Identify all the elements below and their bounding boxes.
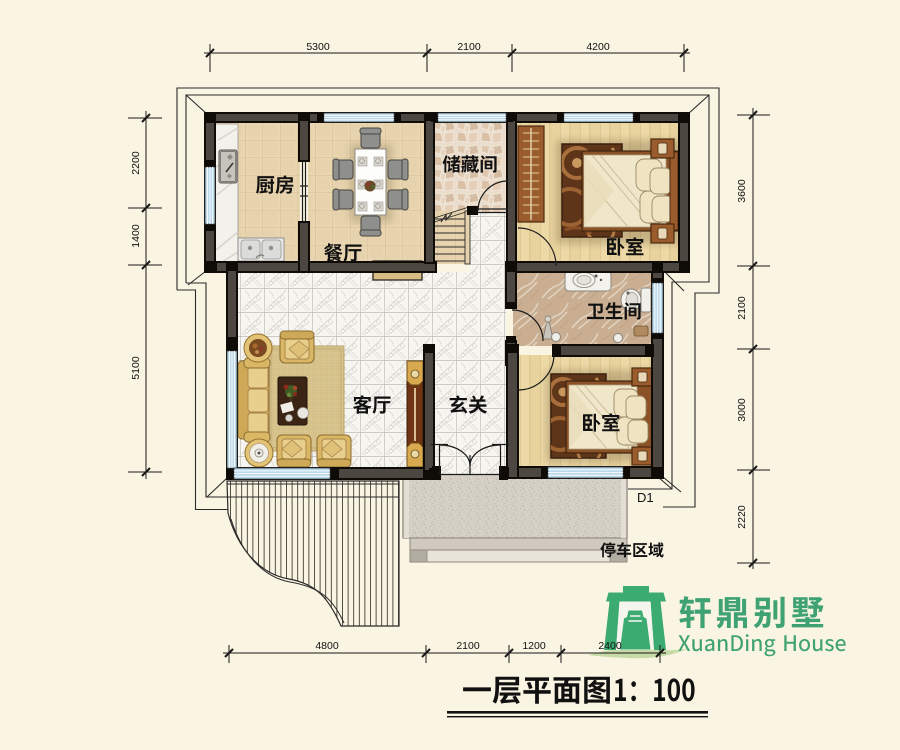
svg-text:4800: 4800: [315, 640, 339, 652]
svg-text:3000: 3000: [736, 398, 748, 422]
svg-text:D1: D1: [637, 490, 654, 505]
svg-text:2100: 2100: [736, 296, 748, 320]
svg-text:1200: 1200: [522, 640, 546, 652]
svg-text:2400: 2400: [598, 640, 622, 652]
svg-text:2200: 2200: [130, 151, 142, 175]
svg-text:5300: 5300: [306, 41, 330, 53]
svg-text:5100: 5100: [130, 356, 142, 380]
svg-text:1400: 1400: [130, 224, 142, 248]
svg-text:3600: 3600: [736, 179, 748, 203]
svg-text:2100: 2100: [456, 640, 480, 652]
svg-text:2100: 2100: [457, 41, 481, 53]
svg-text:4200: 4200: [586, 41, 610, 53]
svg-text:2220: 2220: [736, 505, 748, 529]
